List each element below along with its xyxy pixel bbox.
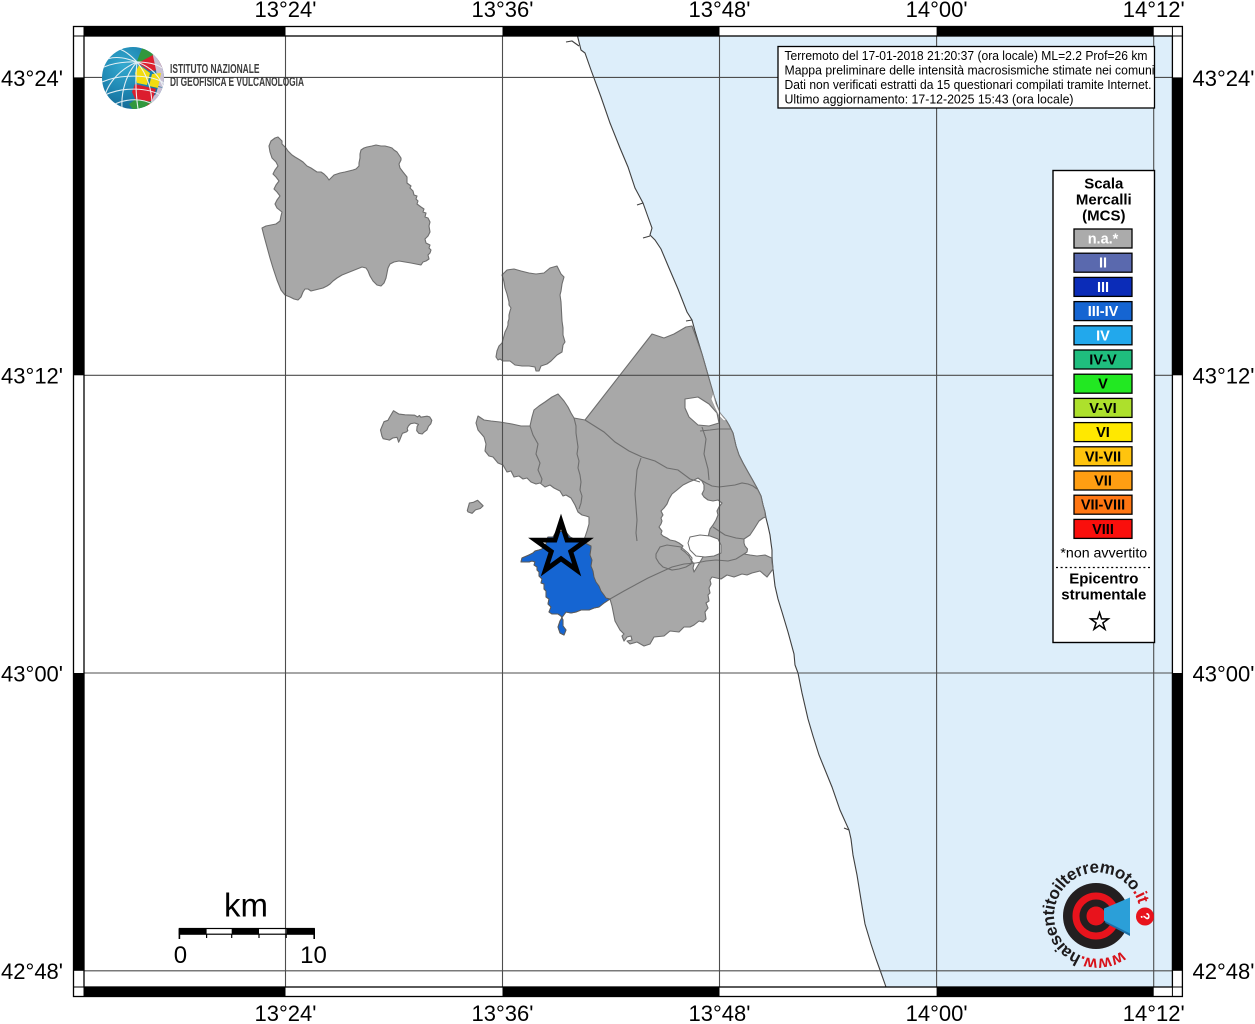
svg-text:strumentale: strumentale [1061, 587, 1146, 604]
svg-text:14°00': 14°00' [906, 0, 968, 22]
svg-text:43°12': 43°12' [1, 364, 63, 389]
svg-text:VII-VIII: VII-VIII [1081, 498, 1125, 514]
svg-text:IV-V: IV-V [1089, 353, 1117, 369]
svg-text:II: II [1099, 256, 1107, 272]
svg-text:43°24': 43°24' [1, 66, 63, 91]
svg-text:Terremoto del 17-01-2018 21:20: Terremoto del 17-01-2018 21:20:37 (ora l… [785, 48, 1148, 63]
svg-text:Dati non verificati estratti d: Dati non verificati estratti da 15 quest… [785, 77, 1152, 92]
svg-text:43°12': 43°12' [1193, 364, 1255, 389]
svg-text:13°48': 13°48' [689, 1001, 751, 1024]
svg-text:Mercalli: Mercalli [1076, 192, 1132, 209]
svg-text:13°24': 13°24' [255, 1001, 317, 1024]
svg-text:43°00': 43°00' [1, 661, 63, 686]
svg-text:42°48': 42°48' [1193, 959, 1255, 984]
svg-text:Ultimo aggiornamento: 17-12-20: Ultimo aggiornamento: 17-12-2025 15:43 (… [785, 92, 1074, 107]
svg-text:Epicentro: Epicentro [1069, 571, 1138, 588]
svg-text:VIII: VIII [1092, 522, 1114, 538]
svg-text:43°24': 43°24' [1193, 66, 1255, 91]
svg-text:0: 0 [174, 942, 187, 969]
svg-text:Scala: Scala [1084, 176, 1124, 193]
svg-text:13°24': 13°24' [255, 0, 317, 22]
svg-text:43°00': 43°00' [1193, 661, 1255, 686]
svg-text:13°36': 13°36' [472, 1001, 534, 1024]
svg-text:V-VI: V-VI [1089, 401, 1116, 417]
svg-text:VI: VI [1096, 425, 1110, 441]
svg-text:14°12': 14°12' [1123, 0, 1185, 22]
svg-text:13°48': 13°48' [689, 0, 751, 22]
svg-text:III-IV: III-IV [1088, 304, 1119, 320]
svg-text:V: V [1098, 377, 1108, 393]
svg-text:VI-VII: VI-VII [1085, 449, 1121, 465]
svg-text:13°36': 13°36' [472, 0, 534, 22]
svg-text:Mappa preliminare delle intens: Mappa preliminare delle intensità macros… [785, 63, 1155, 78]
svg-text:42°48': 42°48' [1, 959, 63, 984]
svg-text:14°00': 14°00' [906, 1001, 968, 1024]
svg-text:IV: IV [1096, 328, 1110, 344]
svg-text:14°12': 14°12' [1123, 1001, 1185, 1024]
svg-text:km: km [224, 887, 268, 924]
svg-text:III: III [1097, 280, 1109, 296]
svg-text:10: 10 [300, 942, 327, 969]
svg-text:n.a.*: n.a.* [1088, 232, 1119, 248]
svg-text:(MCS): (MCS) [1082, 208, 1125, 225]
svg-text:*non avvertito: *non avvertito [1060, 546, 1147, 562]
svg-text:VII: VII [1094, 474, 1112, 490]
svg-text:DI GEOFISICA E VULCANOLOGIA: DI GEOFISICA E VULCANOLOGIA [170, 74, 304, 89]
